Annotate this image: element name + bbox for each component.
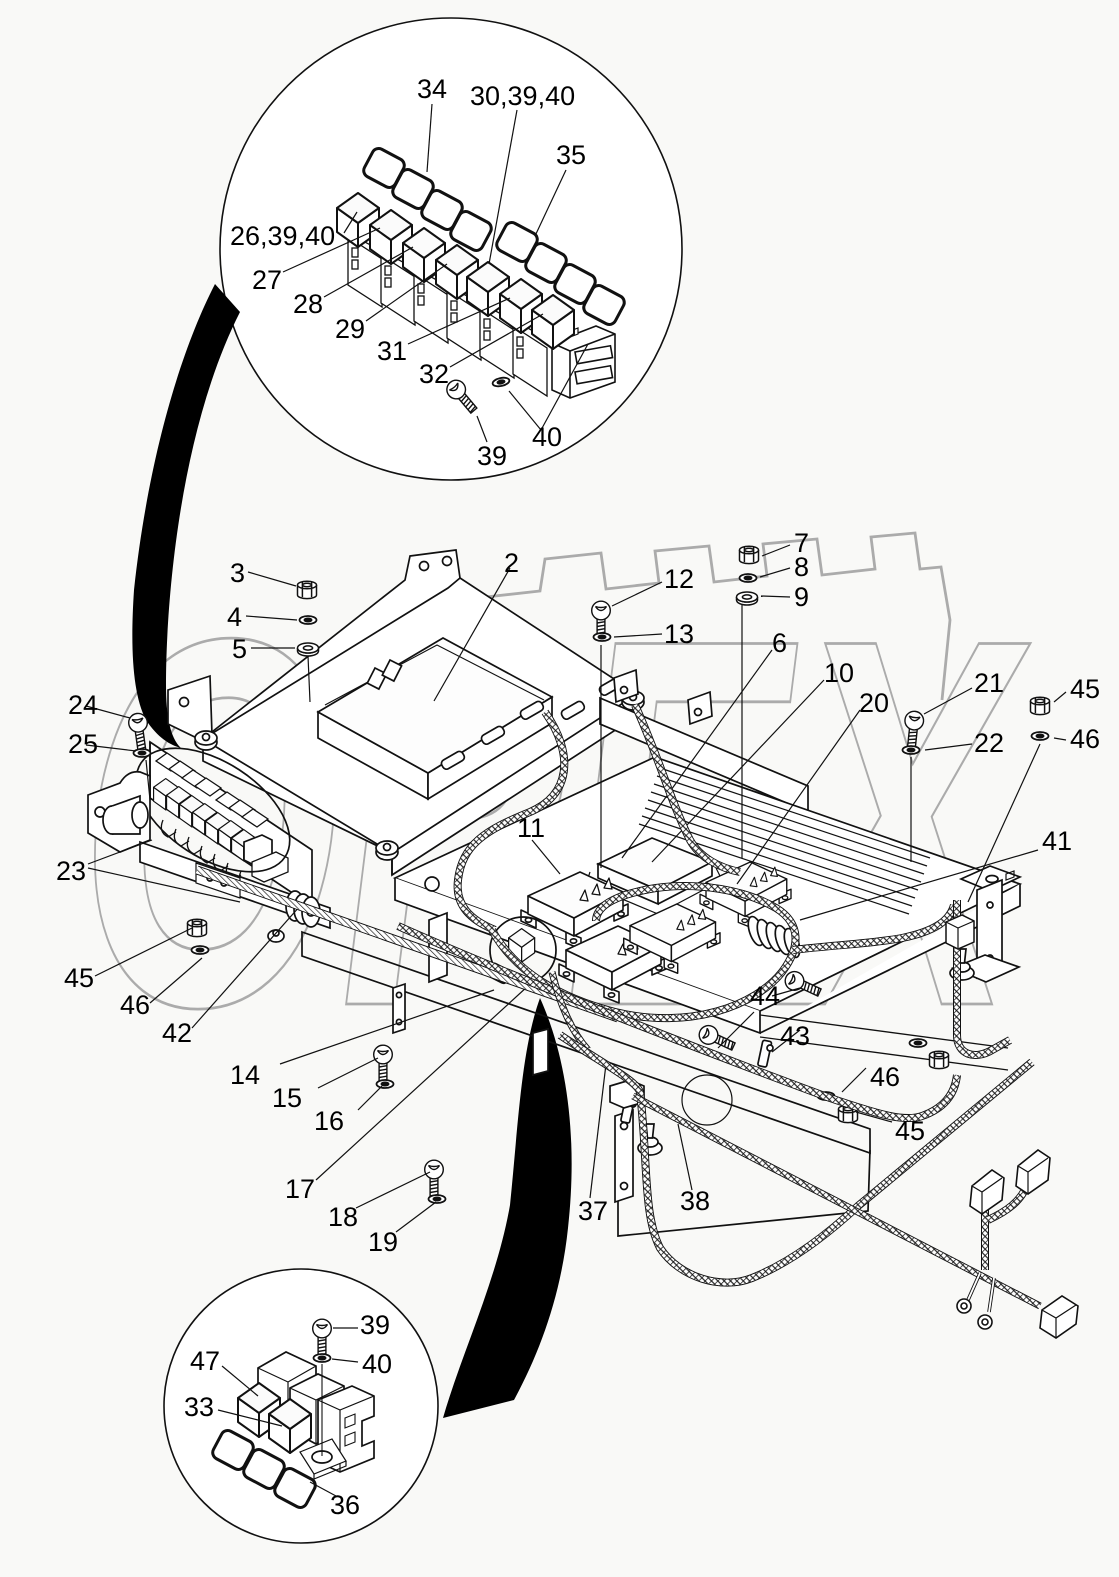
svg-text:41: 41 [1042,826,1072,856]
svg-text:29: 29 [335,314,365,344]
svg-text:27: 27 [252,265,282,295]
svg-text:37: 37 [578,1196,608,1226]
svg-text:13: 13 [664,619,694,649]
svg-text:39: 39 [360,1310,390,1340]
svg-text:34: 34 [417,74,447,104]
svg-text:25: 25 [68,729,98,759]
svg-text:46: 46 [120,990,150,1020]
svg-text:2: 2 [504,548,519,578]
svg-text:23: 23 [56,856,86,886]
svg-text:43: 43 [780,1021,810,1051]
svg-text:26,39,40: 26,39,40 [230,221,335,251]
svg-text:47: 47 [190,1346,220,1376]
svg-text:6: 6 [772,628,787,658]
svg-text:5: 5 [232,634,247,664]
svg-text:10: 10 [824,658,854,688]
svg-text:40: 40 [532,422,562,452]
svg-text:3: 3 [230,558,245,588]
svg-text:14: 14 [230,1060,260,1090]
svg-text:8: 8 [794,552,809,582]
svg-text:35: 35 [556,140,586,170]
svg-text:17: 17 [285,1174,315,1204]
svg-text:31: 31 [377,336,407,366]
svg-text:21: 21 [974,668,1004,698]
svg-text:40: 40 [362,1349,392,1379]
svg-text:45: 45 [895,1116,925,1146]
svg-text:30,39,40: 30,39,40 [470,81,575,111]
svg-text:42: 42 [162,1018,192,1048]
svg-text:16: 16 [314,1106,344,1136]
svg-text:46: 46 [870,1062,900,1092]
svg-text:15: 15 [272,1083,302,1113]
svg-text:20: 20 [859,688,889,718]
svg-text:24: 24 [68,690,98,720]
svg-text:45: 45 [64,963,94,993]
svg-text:28: 28 [293,289,323,319]
svg-text:22: 22 [974,728,1004,758]
svg-text:19: 19 [368,1227,398,1257]
svg-text:18: 18 [328,1202,358,1232]
svg-text:46: 46 [1070,724,1100,754]
svg-text:44: 44 [750,981,780,1011]
svg-text:33: 33 [184,1392,214,1422]
svg-text:45: 45 [1070,674,1100,704]
svg-text:4: 4 [227,602,242,632]
svg-text:11: 11 [517,813,545,843]
svg-text:32: 32 [419,359,449,389]
svg-text:39: 39 [477,441,507,471]
svg-text:38: 38 [680,1186,710,1216]
svg-text:36: 36 [330,1490,360,1520]
svg-text:12: 12 [664,564,694,594]
svg-text:9: 9 [794,582,809,612]
